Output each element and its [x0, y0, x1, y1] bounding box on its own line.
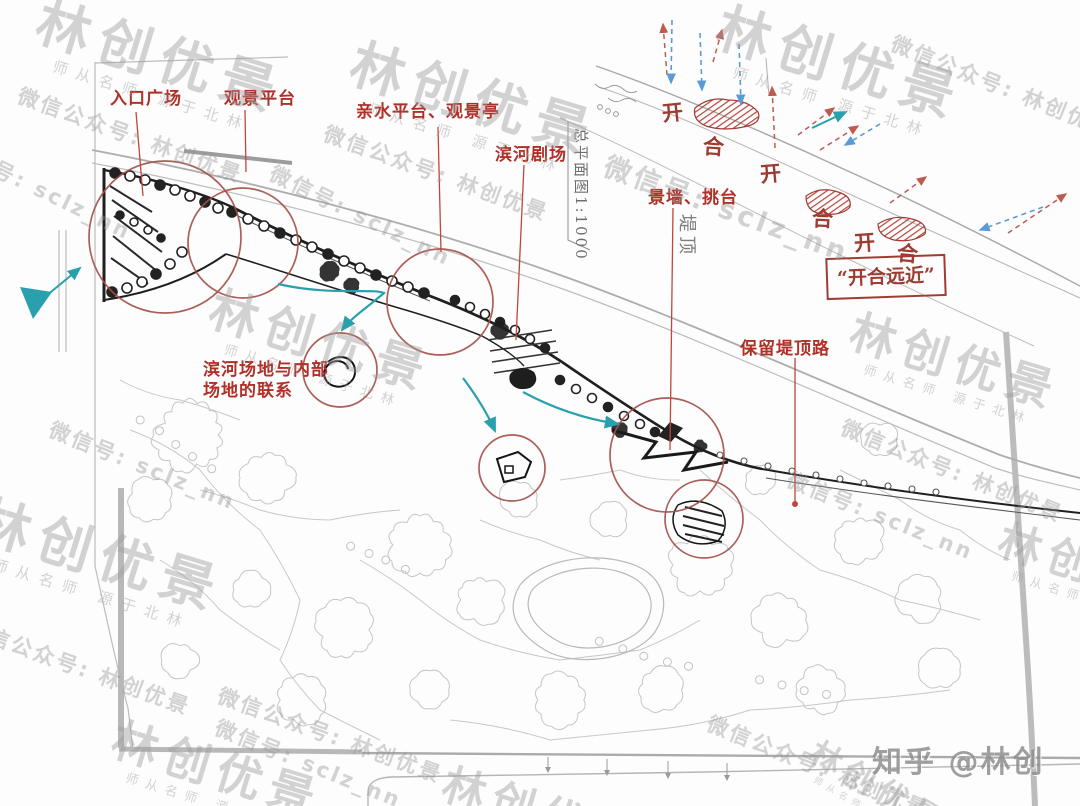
- label-entrance-plaza: 入口广场: [110, 89, 182, 110]
- open-close-char: 开: [853, 226, 876, 257]
- landscape-plan-canvas: 入口广场 观景平台 亲水平台、观景亭 滨河剧场 景墙、挑台 保留堤顶路 滨河场地…: [0, 0, 1080, 806]
- lake-outline: [513, 558, 664, 660]
- note-levee: 堤顶: [675, 214, 701, 258]
- open-close-char: 合: [702, 130, 725, 161]
- label-waterfront-platform: 亲水平台、观景亭: [356, 102, 500, 123]
- open-close-char: 合: [896, 237, 920, 269]
- zhihu-watermark: 知乎 @林创: [872, 737, 1044, 781]
- park-tree-clusters: [128, 398, 961, 729]
- open-close-char: 开: [759, 157, 783, 189]
- label-levee-road: 保留堤顶路: [740, 339, 830, 360]
- road-direction-arrows: [548, 757, 727, 780]
- label-connection-line2: 场地的联系: [203, 381, 329, 402]
- label-connection: 滨河场地与内部 场地的联系: [203, 360, 329, 402]
- park-paths-sketch: [120, 380, 1010, 740]
- open-close-char: 合: [811, 202, 834, 233]
- label-scenic-wall: 景墙、挑台: [648, 188, 738, 209]
- plan-sketch: [0, 0, 1080, 806]
- label-viewing-platform: 观景平台: [224, 89, 296, 110]
- node-highlight-circles: [89, 161, 743, 558]
- label-riverside-theater: 滨河剧场: [495, 145, 567, 166]
- open-close-char: 开: [660, 96, 684, 128]
- label-connection-line1: 滨河场地与内部: [203, 360, 329, 381]
- note-plan-scale: 总平面图1:1000: [571, 128, 592, 261]
- concept-tree-masses-red: [694, 99, 925, 241]
- note-open-close-rhythm: “开合远近”: [825, 254, 946, 300]
